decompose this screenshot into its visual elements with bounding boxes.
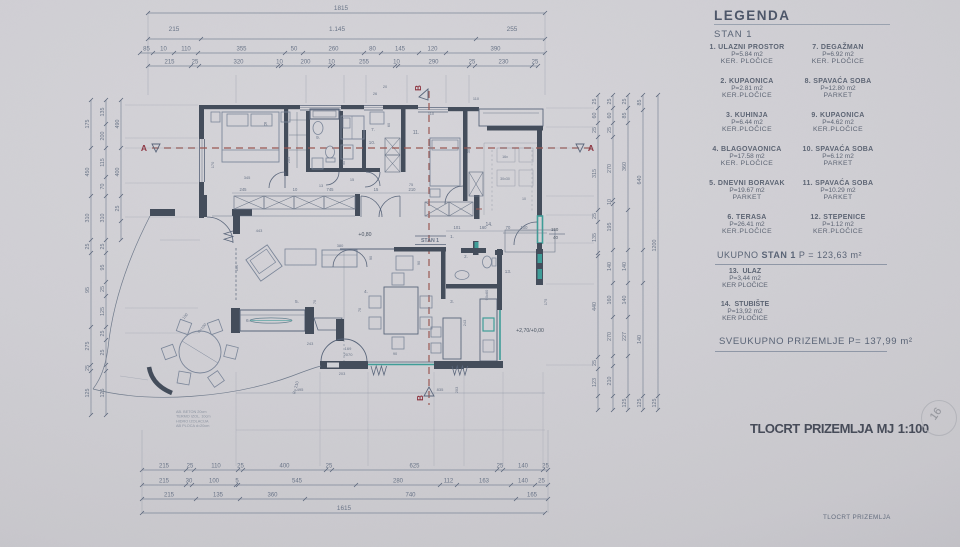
svg-text:163: 163 bbox=[479, 479, 490, 485]
svg-text:25: 25 bbox=[115, 206, 121, 212]
svg-text:243: 243 bbox=[307, 341, 314, 346]
svg-text:25: 25 bbox=[100, 331, 106, 337]
svg-text:205: 205 bbox=[286, 157, 291, 164]
svg-text:443: 443 bbox=[256, 228, 263, 233]
svg-text:215: 215 bbox=[159, 464, 170, 470]
svg-text:135: 135 bbox=[213, 493, 224, 499]
svg-text:227: 227 bbox=[622, 332, 628, 341]
svg-text:200: 200 bbox=[300, 60, 311, 66]
svg-text:14.: 14. bbox=[486, 222, 493, 228]
svg-text:+0,80: +0,80 bbox=[358, 232, 371, 238]
svg-text:100: 100 bbox=[209, 479, 220, 485]
svg-text:13.: 13. bbox=[505, 269, 511, 274]
svg-text:260: 260 bbox=[328, 47, 339, 53]
svg-text:400: 400 bbox=[115, 168, 121, 177]
svg-text:215: 215 bbox=[164, 60, 175, 66]
svg-text:25: 25 bbox=[100, 244, 106, 250]
svg-text:5.: 5. bbox=[295, 299, 299, 305]
svg-text:440: 440 bbox=[592, 302, 598, 311]
svg-text:140: 140 bbox=[518, 479, 529, 485]
svg-text:640: 640 bbox=[637, 176, 643, 185]
svg-text:290: 290 bbox=[428, 60, 439, 66]
svg-text:165: 165 bbox=[527, 493, 538, 499]
svg-text:11.: 11. bbox=[413, 130, 420, 136]
svg-text:140: 140 bbox=[622, 296, 628, 305]
svg-text:16x: 16x bbox=[502, 155, 508, 159]
svg-text:7.: 7. bbox=[371, 127, 375, 132]
svg-text:625: 625 bbox=[409, 464, 420, 470]
svg-text:AB PLOCA d=20cm: AB PLOCA d=20cm bbox=[176, 424, 209, 428]
svg-text:135: 135 bbox=[100, 108, 106, 117]
svg-text:270: 270 bbox=[607, 332, 613, 341]
svg-text:490: 490 bbox=[115, 120, 121, 129]
svg-text:25: 25 bbox=[592, 99, 598, 105]
svg-text:80: 80 bbox=[369, 47, 376, 53]
svg-text:203: 203 bbox=[454, 387, 459, 394]
svg-text:8.: 8. bbox=[264, 122, 268, 128]
svg-text:25: 25 bbox=[100, 350, 106, 356]
svg-text:380: 380 bbox=[337, 243, 344, 248]
svg-text:400: 400 bbox=[279, 464, 290, 470]
svg-text:110: 110 bbox=[473, 96, 480, 101]
svg-text:215: 215 bbox=[164, 493, 175, 499]
svg-text:25: 25 bbox=[592, 127, 598, 133]
svg-text:25: 25 bbox=[532, 60, 539, 66]
svg-text:245: 245 bbox=[240, 187, 248, 192]
svg-text:10.: 10. bbox=[369, 140, 375, 145]
svg-text:310: 310 bbox=[85, 214, 91, 223]
svg-text:25: 25 bbox=[607, 127, 613, 133]
svg-text:545: 545 bbox=[292, 479, 303, 485]
svg-text:310: 310 bbox=[100, 214, 106, 223]
svg-text:315: 315 bbox=[592, 169, 598, 178]
svg-text:10: 10 bbox=[328, 60, 335, 66]
svg-text:255: 255 bbox=[359, 60, 370, 66]
svg-text:360: 360 bbox=[267, 493, 278, 499]
svg-text:25: 25 bbox=[538, 479, 545, 485]
svg-text:+2,70/+0,00: +2,70/+0,00 bbox=[516, 328, 544, 334]
svg-text:26: 26 bbox=[373, 91, 377, 96]
svg-text:100: 100 bbox=[234, 264, 239, 271]
svg-text:390: 390 bbox=[490, 47, 501, 53]
svg-text:30x30: 30x30 bbox=[500, 177, 510, 181]
svg-text:10: 10 bbox=[160, 47, 167, 53]
svg-text:200: 200 bbox=[100, 132, 106, 141]
svg-text:TERMO IZOL. 10cm: TERMO IZOL. 10cm bbox=[176, 415, 211, 419]
svg-text:740: 740 bbox=[405, 493, 416, 499]
svg-text:100: 100 bbox=[521, 225, 529, 230]
svg-text:25: 25 bbox=[100, 286, 106, 292]
svg-text:10: 10 bbox=[522, 197, 526, 201]
svg-text:50: 50 bbox=[291, 47, 298, 53]
svg-text:25: 25 bbox=[187, 464, 194, 470]
svg-text:1615: 1615 bbox=[337, 505, 352, 512]
svg-text:25: 25 bbox=[622, 99, 628, 105]
svg-text:B: B bbox=[414, 85, 423, 91]
svg-text:270: 270 bbox=[607, 164, 613, 173]
svg-text:70: 70 bbox=[100, 184, 106, 190]
svg-text:110: 110 bbox=[181, 47, 191, 53]
svg-text:85: 85 bbox=[143, 47, 150, 53]
svg-text:75: 75 bbox=[409, 182, 413, 187]
svg-text:1200: 1200 bbox=[652, 240, 658, 252]
svg-text:345: 345 bbox=[244, 175, 251, 180]
svg-text:140: 140 bbox=[518, 464, 529, 470]
svg-text:195: 195 bbox=[607, 223, 613, 232]
svg-text:1.: 1. bbox=[450, 234, 454, 239]
svg-text:AB. BETON 20cm: AB. BETON 20cm bbox=[176, 410, 207, 414]
svg-text:210: 210 bbox=[409, 187, 417, 192]
svg-text:255: 255 bbox=[507, 26, 518, 33]
svg-text:10: 10 bbox=[607, 199, 613, 205]
svg-text:160: 160 bbox=[480, 225, 488, 230]
svg-text:150: 150 bbox=[551, 227, 559, 232]
svg-text:360: 360 bbox=[622, 162, 628, 171]
svg-text:210: 210 bbox=[607, 377, 613, 386]
svg-text:85: 85 bbox=[622, 113, 628, 119]
svg-text:95: 95 bbox=[85, 287, 91, 293]
svg-text:215: 215 bbox=[159, 479, 170, 485]
svg-text:175: 175 bbox=[85, 120, 91, 129]
svg-text:125: 125 bbox=[637, 399, 643, 408]
svg-text:25: 25 bbox=[592, 213, 598, 219]
svg-text:60: 60 bbox=[592, 113, 598, 119]
svg-text:125: 125 bbox=[652, 399, 658, 408]
svg-text:355: 355 bbox=[236, 47, 247, 53]
svg-text:30: 30 bbox=[186, 479, 193, 485]
svg-text:120: 120 bbox=[427, 47, 438, 53]
svg-text:243: 243 bbox=[462, 320, 467, 327]
svg-text:1.145: 1.145 bbox=[329, 26, 345, 33]
svg-text:450: 450 bbox=[85, 168, 91, 177]
svg-text:15: 15 bbox=[350, 177, 354, 182]
svg-text:90x60: 90x60 bbox=[484, 289, 489, 300]
svg-text:85: 85 bbox=[637, 100, 643, 106]
svg-text:60: 60 bbox=[607, 113, 613, 119]
svg-text:140: 140 bbox=[622, 262, 628, 271]
svg-text:70: 70 bbox=[506, 225, 511, 230]
svg-text:25: 25 bbox=[85, 365, 91, 371]
svg-text:160: 160 bbox=[607, 296, 613, 305]
svg-text:275: 275 bbox=[85, 342, 91, 351]
svg-text:4.: 4. bbox=[364, 289, 368, 295]
svg-text:110: 110 bbox=[428, 111, 435, 116]
svg-text:125: 125 bbox=[622, 399, 628, 408]
svg-text:215: 215 bbox=[169, 26, 180, 33]
svg-text:230: 230 bbox=[498, 60, 509, 66]
svg-text:140: 140 bbox=[607, 262, 613, 271]
svg-text:9.: 9. bbox=[316, 135, 320, 140]
svg-text:125: 125 bbox=[100, 389, 106, 398]
svg-text:6.: 6. bbox=[246, 318, 250, 324]
svg-text:101: 101 bbox=[454, 225, 462, 230]
svg-text:10: 10 bbox=[293, 187, 298, 192]
svg-text:95: 95 bbox=[100, 265, 106, 271]
svg-text:835: 835 bbox=[437, 387, 444, 392]
svg-text:169: 169 bbox=[345, 346, 352, 351]
svg-text:280: 280 bbox=[393, 479, 404, 485]
svg-text:140: 140 bbox=[637, 335, 643, 344]
svg-text:25: 25 bbox=[237, 464, 244, 470]
svg-text:305: 305 bbox=[466, 147, 471, 154]
svg-text:123: 123 bbox=[592, 378, 598, 387]
svg-text:13: 13 bbox=[319, 183, 323, 188]
svg-text:25: 25 bbox=[192, 60, 199, 66]
svg-text:HIDRO IZOLACIJA: HIDRO IZOLACIJA bbox=[176, 419, 209, 423]
svg-text:15: 15 bbox=[374, 187, 379, 192]
svg-text:495: 495 bbox=[297, 387, 304, 392]
svg-text:25: 25 bbox=[542, 464, 549, 470]
svg-text:25: 25 bbox=[607, 99, 613, 105]
svg-text:25: 25 bbox=[326, 464, 333, 470]
svg-text:320: 320 bbox=[233, 60, 244, 66]
svg-text:25: 25 bbox=[85, 244, 91, 250]
svg-text:175: 175 bbox=[543, 299, 548, 306]
svg-text:10: 10 bbox=[276, 60, 283, 66]
svg-text:135: 135 bbox=[592, 233, 598, 242]
svg-text:2.: 2. bbox=[464, 254, 468, 259]
svg-text:110: 110 bbox=[211, 464, 221, 470]
svg-text:2070: 2070 bbox=[344, 352, 354, 357]
svg-text:115: 115 bbox=[100, 158, 106, 167]
svg-text:1815: 1815 bbox=[334, 5, 349, 12]
svg-text:145: 145 bbox=[395, 47, 406, 53]
svg-text:745: 745 bbox=[327, 187, 335, 192]
svg-text:203: 203 bbox=[339, 371, 346, 376]
svg-text:125: 125 bbox=[85, 389, 91, 398]
svg-text:25: 25 bbox=[469, 60, 476, 66]
svg-text:40: 40 bbox=[553, 235, 558, 240]
svg-text:112: 112 bbox=[444, 479, 454, 485]
svg-text:STAN 1: STAN 1 bbox=[421, 238, 439, 244]
svg-text:10: 10 bbox=[393, 60, 400, 66]
svg-text:125: 125 bbox=[100, 307, 106, 316]
svg-text:170: 170 bbox=[210, 161, 215, 168]
svg-text:3.: 3. bbox=[450, 299, 454, 304]
